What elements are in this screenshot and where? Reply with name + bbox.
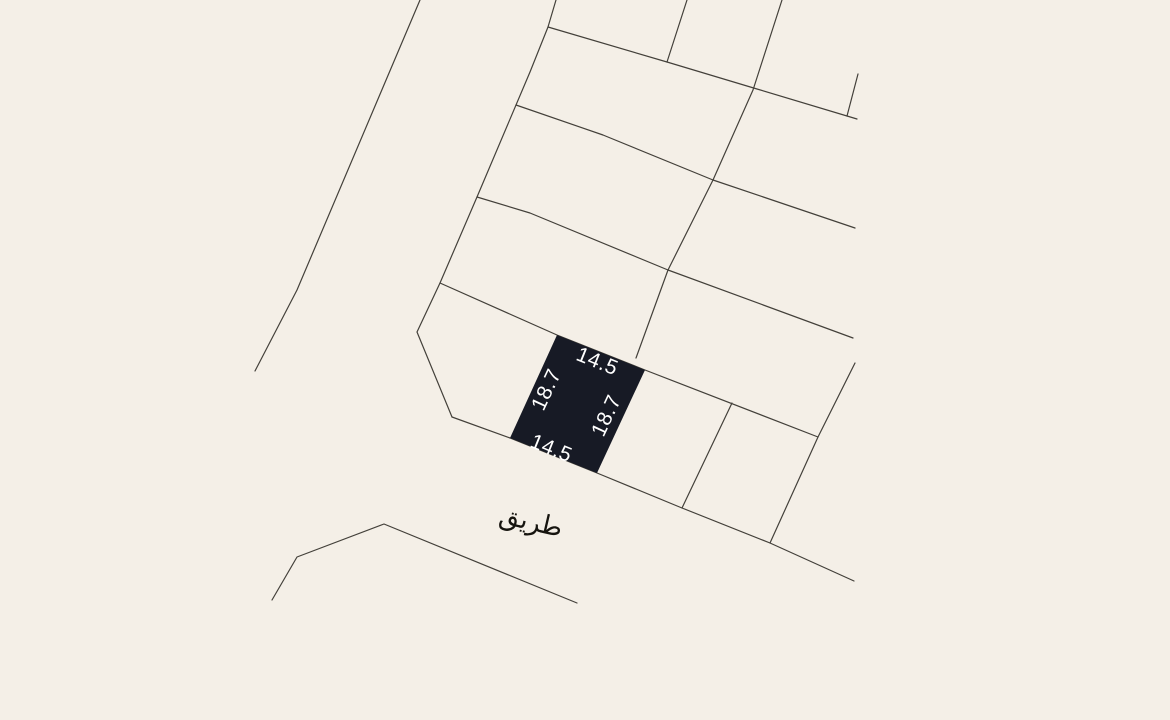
boundary-line-parcel-row-top-edge [440,283,818,437]
boundary-line-south-road-edge [452,417,854,581]
boundary-line-north-stub [667,0,687,62]
boundary-line-row-line-middle [516,105,855,228]
boundary-line-row-line-north [548,27,857,119]
parcel-map-canvas[interactable] [0,0,1170,720]
boundary-line-east-divider [770,363,855,543]
highlighted-parcel[interactable] [510,335,645,473]
boundary-line-north-east-stub [847,74,858,116]
boundary-line-south-west-block-edge [272,524,577,603]
parcel-map-stage[interactable]: طريق 14.518.718.714.5 [0,0,1170,720]
boundary-line-west-road-edge [255,0,420,371]
boundary-line-block-west-boundary [417,0,556,417]
boundary-line-row-line-lower [477,197,853,338]
boundary-line-mid-divider [682,403,732,508]
map-screenshot: { "canvas": { "width": 1170, "height": 7… [0,0,1170,720]
